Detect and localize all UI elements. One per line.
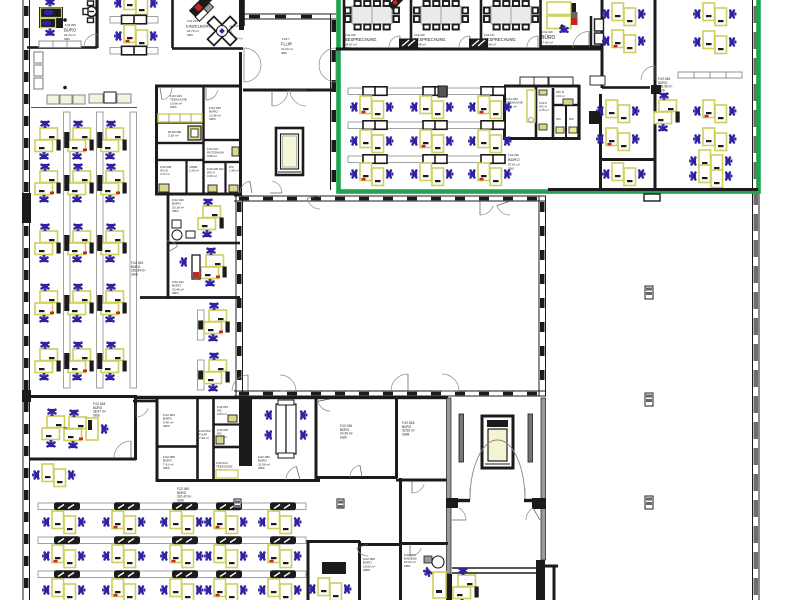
svg-text:GBS: GBS	[258, 466, 265, 470]
svg-text:BESPRECHUNG: BESPRECHUNG	[414, 37, 446, 42]
svg-text:F.02.7: F.02.7	[282, 37, 290, 41]
svg-text:GBM: GBM	[363, 568, 370, 572]
svg-text:4.61 m²: 4.61 m²	[556, 94, 565, 98]
svg-text:BESPRECHUNG: BESPRECHUNG	[345, 37, 377, 42]
svg-text:WC: WC	[556, 117, 562, 121]
svg-text:GBS: GBS	[541, 45, 547, 49]
svg-text:F.02.018: F.02.018	[542, 30, 553, 34]
svg-text:2.84 m²: 2.84 m²	[217, 412, 227, 416]
svg-text:FLUR: FLUR	[281, 42, 292, 47]
svg-text:EINZELBÜRO: EINZELBÜRO	[186, 24, 212, 29]
svg-text:GBS: GBS	[658, 88, 665, 92]
svg-text:BÜRO: BÜRO	[64, 28, 77, 33]
svg-text:GBS: GBS	[64, 37, 70, 41]
svg-text:GBS: GBS	[177, 498, 184, 502]
svg-text:GBS: GBS	[209, 117, 216, 121]
svg-text:GBS: GBS	[131, 272, 138, 276]
svg-text:WC: WC	[569, 117, 575, 121]
svg-text:GBS: GBS	[404, 564, 410, 568]
svg-text:3.08 m²: 3.08 m²	[207, 154, 217, 158]
svg-text:GBS: GBS	[508, 167, 514, 171]
svg-text:4.75 m²: 4.75 m²	[539, 108, 549, 112]
svg-text:WC D: WC D	[556, 90, 565, 94]
svg-text:GBS: GBS	[163, 466, 170, 470]
svg-text:GBS: GBS	[93, 413, 100, 417]
svg-text:GBS: GBS	[281, 51, 287, 55]
svg-text:BESPRECHUNG: BESPRECHUNG	[484, 37, 516, 42]
svg-text:GBS: GBS	[172, 209, 179, 213]
svg-text:GBS: GBS	[345, 46, 351, 50]
svg-text:7.99 m²: 7.99 m²	[199, 436, 209, 440]
svg-text:3.30 m²: 3.30 m²	[207, 174, 217, 178]
svg-text:BÜRO: BÜRO	[508, 157, 520, 162]
svg-text:GBS: GBS	[340, 435, 347, 439]
svg-text:3.18 m²: 3.18 m²	[168, 134, 179, 138]
svg-text:GBS: GBS	[163, 424, 170, 428]
svg-text:F.02.008: F.02.008	[65, 23, 76, 27]
svg-text:GBS: GBS	[187, 33, 193, 37]
svg-text:2.26 m²: 2.26 m²	[189, 169, 199, 173]
svg-text:GBM: GBM	[402, 432, 410, 436]
svg-text:GBS: GBS	[170, 105, 177, 109]
svg-text:F.02.014: F.02.014	[187, 19, 198, 23]
svg-text:1.98 m²: 1.98 m²	[229, 169, 239, 173]
svg-text:GBS: GBS	[172, 291, 179, 295]
svg-text:4.72 m²: 4.72 m²	[160, 172, 170, 176]
